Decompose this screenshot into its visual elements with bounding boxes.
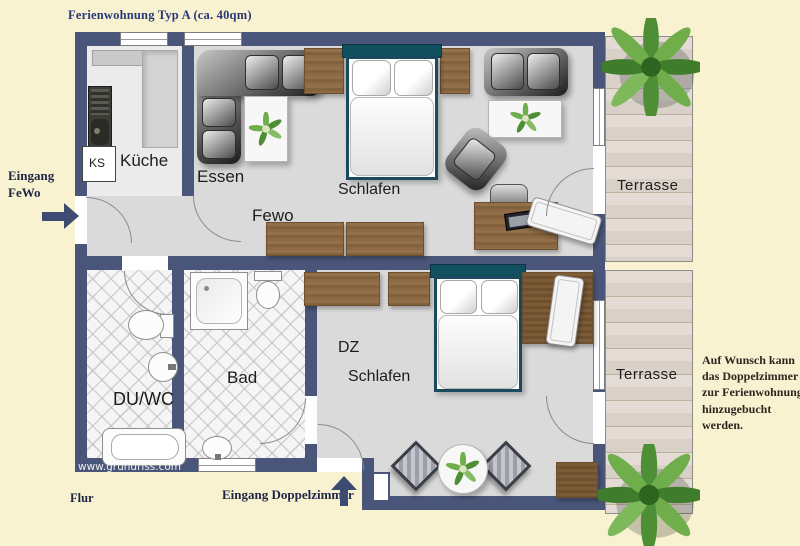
table-plant-icon — [510, 103, 541, 134]
window-essen — [184, 32, 242, 46]
booking-note: Auf Wunsch kann das Doppelzimmer zur Fer… — [702, 352, 800, 433]
room-label-duwc: DU/WC — [113, 389, 174, 410]
sofa-cushion — [245, 55, 279, 90]
door-opening-fewo-terrace — [593, 146, 605, 214]
room-label-terrasse-top: Terrasse — [617, 177, 679, 194]
entrance-arrow-dz-icon — [331, 476, 357, 506]
door-opening-duwc — [122, 256, 168, 270]
terrace-plant-top-icon — [602, 18, 700, 116]
sink-bad — [202, 436, 232, 460]
sofa-cushion — [527, 53, 560, 90]
window-dz-right — [593, 300, 605, 390]
table-plant-icon — [249, 112, 283, 146]
page-title: Ferienwohnung Typ A (ca. 40qm) — [68, 8, 252, 23]
room-label-fewo: Fewo — [252, 206, 294, 226]
shower-drain-icon — [204, 286, 209, 291]
doormat-dz — [556, 462, 598, 498]
toilet-bowl-bad — [256, 281, 280, 309]
pillow — [440, 280, 477, 314]
room-label-ks: KS — [89, 156, 105, 170]
duvet-dz — [438, 315, 518, 389]
room-label-schlafen-dz: Schlafen — [348, 368, 410, 386]
room-label-bad: Bad — [227, 368, 257, 388]
entrance-fewo-line2: FeWo — [8, 185, 54, 202]
door-opening-bad — [305, 396, 317, 444]
room-label-dz: DZ — [338, 339, 359, 357]
room-label-schlafen-fewo: Schlafen — [338, 181, 400, 199]
floorplan-page: { "title": "Ferienwohnung Typ A (ca. 40q… — [0, 0, 800, 542]
toilet-tank-bad — [254, 271, 282, 281]
entrance-arrow-fewo-icon — [42, 202, 80, 230]
sink-duwc — [148, 352, 178, 382]
toilet-bowl-duwc — [128, 310, 164, 340]
wall-bad-dz-lower — [305, 444, 317, 458]
terrace-plant-bottom-icon — [598, 444, 700, 546]
stove-icon — [91, 89, 109, 115]
sofa-cushion — [491, 53, 524, 90]
wall-bottom-dz — [374, 496, 605, 510]
wardrobe-dz-right — [388, 272, 430, 306]
window-bad-bottom — [198, 458, 256, 472]
pillow — [481, 280, 518, 314]
duvet-fewo — [350, 97, 434, 176]
room-label-essen: Essen — [197, 167, 244, 187]
kitchen-counter-right — [142, 50, 178, 148]
kitchen-appliance — [88, 86, 112, 148]
dz-entrance-door-leaf — [372, 472, 390, 502]
nightstand-right — [440, 48, 470, 94]
sofa-cushion — [202, 130, 236, 159]
room-label-terrasse-bottom: Terrasse — [616, 366, 678, 383]
door-opening-dz-terrace — [593, 392, 605, 444]
nightstand-left — [304, 48, 344, 94]
wall-kitchen — [182, 46, 194, 196]
shower-bad — [190, 272, 248, 330]
wardrobe-dz-left — [304, 272, 380, 306]
entrance-fewo-line1: Eingang — [8, 168, 54, 185]
table-plant-icon — [446, 452, 480, 486]
pillow — [352, 60, 391, 96]
sofa-cushion — [202, 98, 236, 127]
window-kitchen — [120, 32, 168, 46]
room-label-kueche: Küche — [120, 151, 168, 171]
entrance-fewo-label: Eingang FeWo — [8, 168, 54, 202]
pillow — [394, 60, 433, 96]
flur-label: Flur — [70, 490, 94, 506]
sideboard-left — [266, 222, 344, 256]
sink-icon — [91, 119, 109, 145]
sideboard-right — [346, 222, 424, 256]
watermark: www.grundriss.com — [78, 461, 181, 473]
wall-left — [75, 32, 87, 472]
